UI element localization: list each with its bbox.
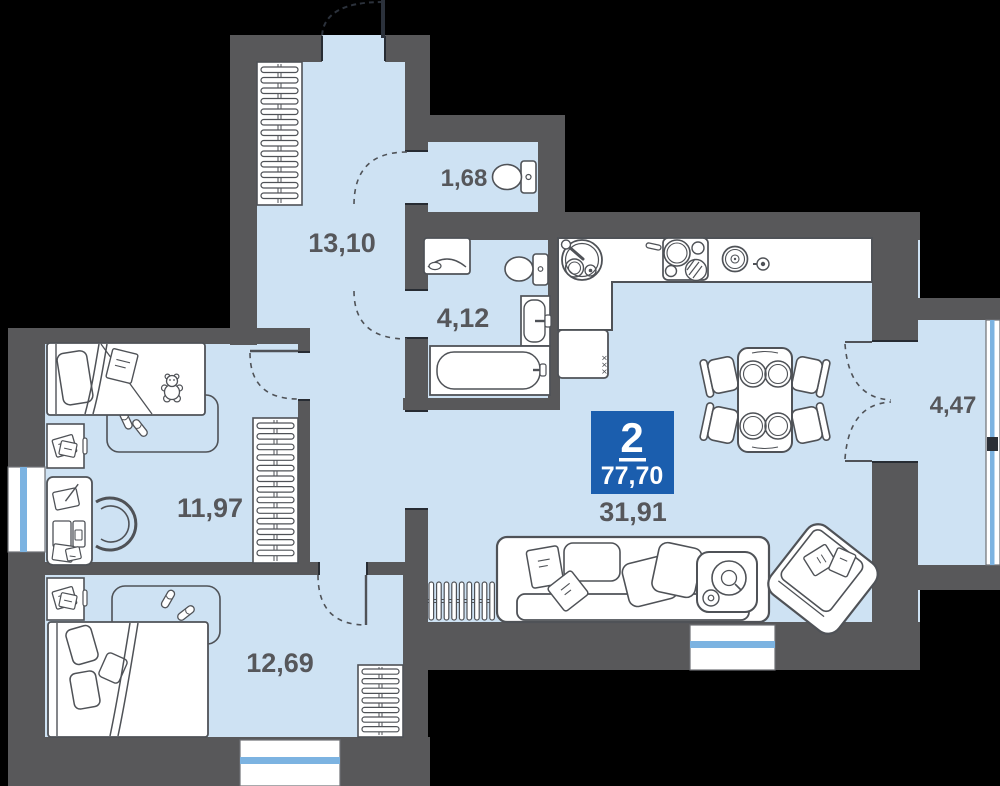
balcony-area-label: 4,47: [930, 392, 977, 419]
hallway-coat-rack-top: [257, 62, 302, 205]
unit-badge-underline: [619, 458, 646, 462]
balcony-window: [986, 320, 1000, 565]
bedroom1-bed: [47, 343, 205, 415]
unit-total-area: 77,70: [601, 462, 664, 490]
bedroom1-area-label: 11,97: [177, 493, 243, 523]
bedroom1-window: [8, 467, 45, 552]
living-room-window: [690, 625, 775, 670]
fridge: ×××: [558, 330, 609, 378]
pot-icon: [723, 247, 748, 272]
hallway-area-label: 13,10: [308, 228, 376, 258]
laptop-icon: [53, 521, 85, 547]
bathroom-sink: [521, 296, 551, 346]
wc-area-label: 1,68: [441, 165, 488, 192]
bedroom2-area-label: 12,69: [246, 648, 314, 678]
bedroom1-wardrobe: [253, 418, 298, 563]
wc-toilet: [493, 161, 537, 193]
unit-badge[interactable]: 2 77,70: [591, 411, 674, 494]
unit-rooms-count: 2: [620, 414, 643, 461]
bedroom2-wardrobe: [358, 665, 403, 737]
bedroom1-nightstand: [47, 424, 87, 468]
fridge-door-seal: ×××: [598, 355, 609, 376]
bathtub: [430, 346, 550, 395]
bedroom2-window: [240, 740, 340, 786]
living-radiator-icon: [427, 582, 495, 620]
balcony-window-handle-icon: [987, 437, 998, 451]
washing-machine: [424, 238, 470, 274]
bedroom2-bed: [48, 622, 208, 737]
kitchen-sink-icon: [562, 240, 603, 280]
bedroom1-desk: [47, 477, 92, 565]
bathroom-area-label: 4,12: [437, 303, 490, 333]
bedroom2-nightstand: [47, 578, 87, 620]
coffee-table: [697, 552, 757, 612]
floor-plan-page: ×××: [0, 0, 1000, 786]
balcony-floor: [910, 320, 990, 565]
kitchen-living-area-label: 31,91: [599, 497, 667, 527]
floor-plan: ×××: [0, 0, 1000, 786]
